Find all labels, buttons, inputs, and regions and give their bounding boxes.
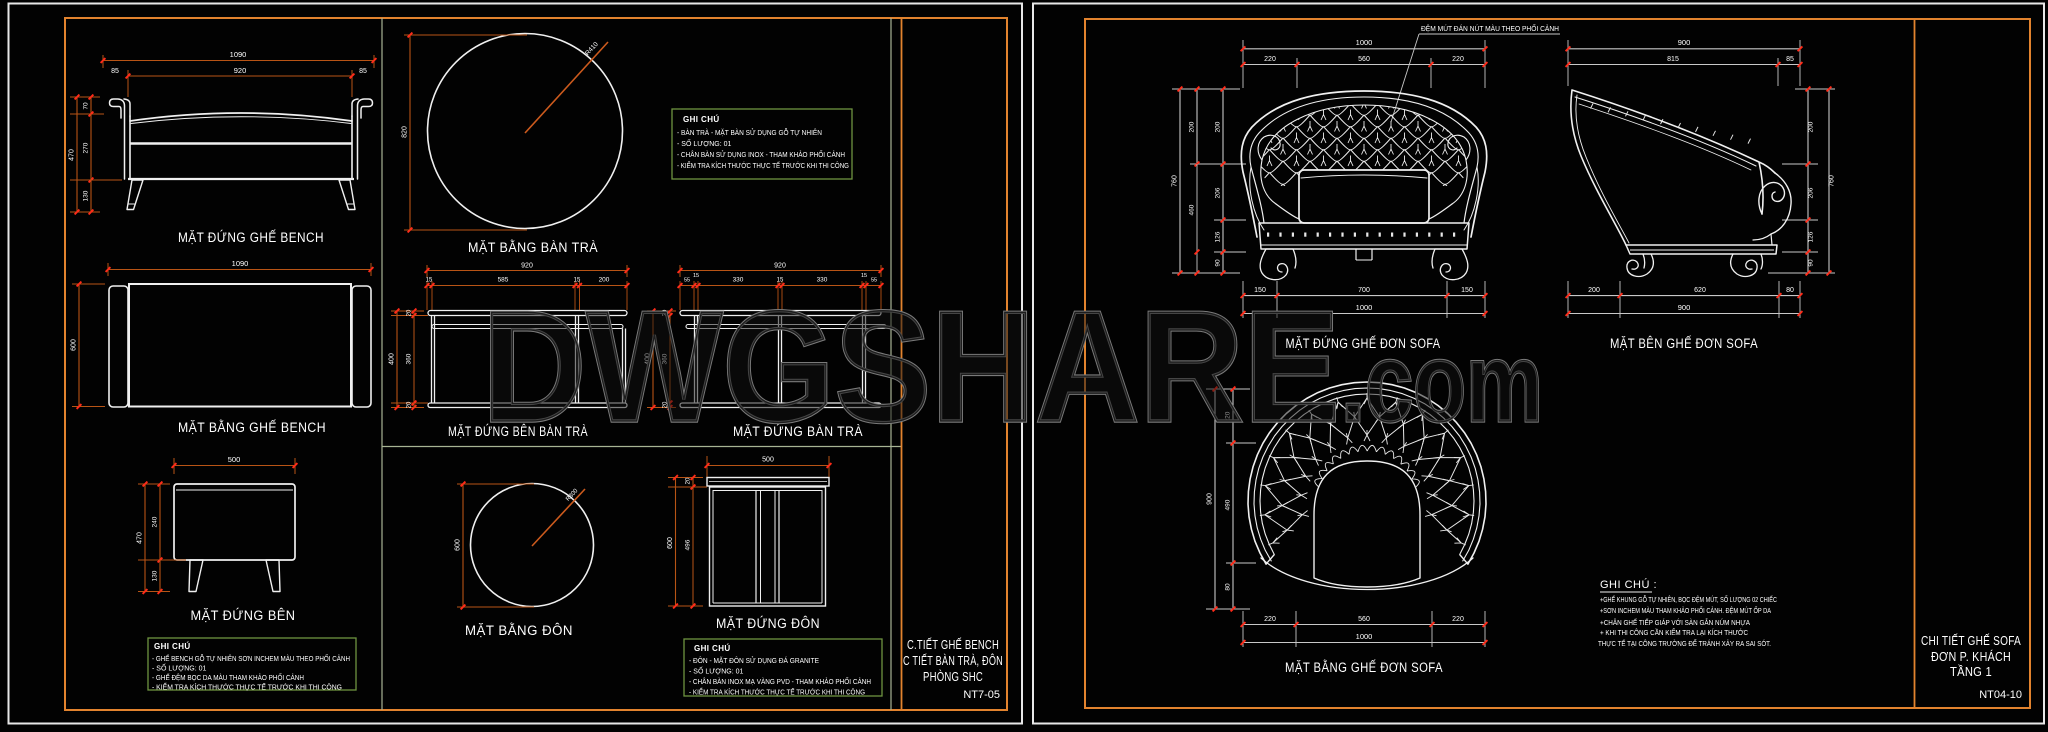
svg-text:C.TIẾT GHẾ BENCH: C.TIẾT GHẾ BENCH	[907, 637, 999, 652]
svg-text:700: 700	[1358, 287, 1370, 294]
svg-text:15: 15	[426, 278, 433, 284]
svg-text:220: 220	[1452, 56, 1464, 63]
svg-text:220: 220	[1264, 56, 1276, 63]
svg-text:+SƠN INCHEM MÀU THAM KHẢO PHỐI: +SƠN INCHEM MÀU THAM KHẢO PHỐI CẢNH. ĐỆM…	[1600, 605, 1771, 615]
svg-text:900: 900	[1678, 303, 1691, 312]
svg-text:200: 200	[1588, 287, 1600, 294]
svg-text:NT04-10: NT04-10	[1979, 689, 2022, 701]
svg-text:460: 460	[1189, 204, 1196, 215]
svg-text:920: 920	[521, 263, 533, 270]
svg-text:1000: 1000	[1356, 303, 1373, 312]
svg-text:85: 85	[359, 68, 367, 75]
svg-text:470: 470	[137, 532, 144, 544]
svg-text:90: 90	[1808, 259, 1815, 267]
svg-text:760: 760	[1829, 175, 1836, 187]
svg-text:490: 490	[1225, 499, 1232, 510]
svg-text:DWGSHARE: DWGSHARE	[482, 279, 1340, 455]
svg-text:600: 600	[455, 539, 462, 551]
svg-text:.com: .com	[1341, 320, 1543, 445]
svg-text:560: 560	[1358, 56, 1370, 63]
svg-text:900: 900	[1678, 38, 1691, 47]
svg-text:126: 126	[1215, 231, 1222, 242]
svg-text:200: 200	[1808, 121, 1815, 132]
svg-text:220: 220	[1264, 616, 1276, 623]
svg-text:126: 126	[1808, 231, 1815, 242]
svg-text:NT7-05: NT7-05	[963, 689, 1000, 701]
svg-text:MẶT BẰNG GHẾ BENCH: MẶT BẰNG GHẾ BENCH	[178, 420, 326, 435]
svg-text:+CHÂN GHẾ TIẾP GIÁP VỚI SÀN GẮ: +CHÂN GHẾ TIẾP GIÁP VỚI SÀN GẮN NÚM NHỰA	[1600, 617, 1750, 627]
svg-text:20: 20	[407, 401, 413, 408]
svg-text:PHÒNG SHC: PHÒNG SHC	[923, 669, 983, 684]
svg-text:80: 80	[1786, 287, 1794, 294]
svg-text:130: 130	[83, 190, 90, 201]
svg-text:+ KHI THI CÔNG CẦN KIỂM TRA LẠ: + KHI THI CÔNG CẦN KIỂM TRA LẠI KÍCH THƯ…	[1600, 627, 1748, 637]
svg-text:920: 920	[234, 66, 247, 75]
svg-text:20: 20	[686, 477, 692, 484]
svg-text:THỰC TẾ TẠI CÔNG TRƯỜNG ĐỂ TRÁ: THỰC TẾ TẠI CÔNG TRƯỜNG ĐỂ TRÁNH XẢY RA …	[1598, 638, 1771, 648]
svg-text:MẶT BẰNG GHẾ ĐƠN SOFA: MẶT BẰNG GHẾ ĐƠN SOFA	[1285, 660, 1443, 675]
svg-text:GHI CHÚ :: GHI CHÚ :	[1600, 578, 1657, 591]
svg-text:220: 220	[1452, 616, 1464, 623]
svg-text:80: 80	[1225, 583, 1232, 591]
svg-text:70: 70	[83, 102, 90, 110]
svg-text:MẶT BẰNG ĐÔN: MẶT BẰNG ĐÔN	[465, 623, 573, 638]
svg-text:200: 200	[1215, 121, 1222, 132]
svg-text:470: 470	[69, 149, 76, 161]
svg-text:GHI CHÚ: GHI CHÚ	[154, 642, 191, 651]
svg-text:150: 150	[1461, 287, 1473, 294]
svg-text:920: 920	[774, 263, 786, 270]
svg-text:20: 20	[407, 309, 413, 316]
svg-text:- BÀN TRÀ - MẶT BÀN SỬ DỤNG GỖ: - BÀN TRÀ - MẶT BÀN SỬ DỤNG GỖ TỰ NHIÊN	[677, 128, 822, 137]
svg-text:240: 240	[152, 516, 159, 527]
svg-text:MẶT ĐỨNG GHẾ BENCH: MẶT ĐỨNG GHẾ BENCH	[178, 230, 324, 245]
svg-text:200: 200	[1189, 121, 1196, 132]
svg-text:CHI TIẾT GHẾ SOFA: CHI TIẾT GHẾ SOFA	[1921, 633, 2021, 648]
svg-text:206: 206	[1808, 187, 1815, 198]
svg-text:85: 85	[1786, 56, 1794, 63]
svg-text:760: 760	[1172, 175, 1179, 187]
svg-text:130: 130	[152, 570, 159, 581]
svg-text:MẶT BÊN GHẾ ĐƠN SOFA: MẶT BÊN GHẾ ĐƠN SOFA	[1610, 336, 1758, 351]
svg-text:560: 560	[1358, 616, 1370, 623]
svg-text:MẶT ĐỨNG BÊN: MẶT ĐỨNG BÊN	[191, 608, 296, 623]
svg-text:270: 270	[83, 142, 90, 153]
svg-text:- ĐÔN - MẶT ĐÔN SỬ DỤNG ĐÁ GRA: - ĐÔN - MẶT ĐÔN SỬ DỤNG ĐÁ GRANITE	[689, 656, 819, 665]
svg-text:MẶT ĐỨNG ĐÔN: MẶT ĐỨNG ĐÔN	[716, 616, 820, 631]
svg-text:600: 600	[667, 537, 674, 549]
svg-text:MẶT BẰNG BÀN TRÀ: MẶT BẰNG BÀN TRÀ	[468, 240, 598, 255]
svg-text:815: 815	[1667, 56, 1679, 63]
svg-text:360: 360	[406, 353, 413, 364]
svg-text:620: 620	[1694, 287, 1706, 294]
svg-text:C TIẾT BÀN TRÀ, ĐÔN: C TIẾT BÀN TRÀ, ĐÔN	[903, 653, 1003, 668]
svg-text:500: 500	[228, 455, 241, 464]
svg-text:1000: 1000	[1356, 38, 1373, 47]
svg-text:TẦNG 1: TẦNG 1	[1950, 664, 1992, 679]
svg-text:90: 90	[1215, 259, 1222, 267]
svg-text:900: 900	[1207, 493, 1214, 505]
svg-text:+GHẾ KHUNG GỖ TỰ NHIÊN, BỌC ĐỆ: +GHẾ KHUNG GỖ TỰ NHIÊN, BỌC ĐỆM MÚT, SỐ …	[1600, 594, 1777, 604]
svg-text:820: 820	[402, 126, 409, 138]
svg-text:1000: 1000	[1356, 632, 1373, 641]
svg-text:85: 85	[111, 68, 119, 75]
svg-text:GHI CHÚ: GHI CHÚ	[694, 644, 731, 653]
svg-text:1090: 1090	[230, 50, 247, 59]
svg-text:600: 600	[71, 339, 78, 351]
svg-text:500: 500	[762, 457, 774, 464]
svg-text:GHI CHÚ: GHI CHÚ	[683, 115, 720, 124]
svg-text:496: 496	[685, 539, 692, 550]
svg-text:1090: 1090	[232, 259, 249, 268]
svg-text:400: 400	[389, 353, 396, 365]
svg-text:ĐƠN P. KHÁCH: ĐƠN P. KHÁCH	[1931, 649, 2011, 664]
svg-text:206: 206	[1215, 187, 1222, 198]
